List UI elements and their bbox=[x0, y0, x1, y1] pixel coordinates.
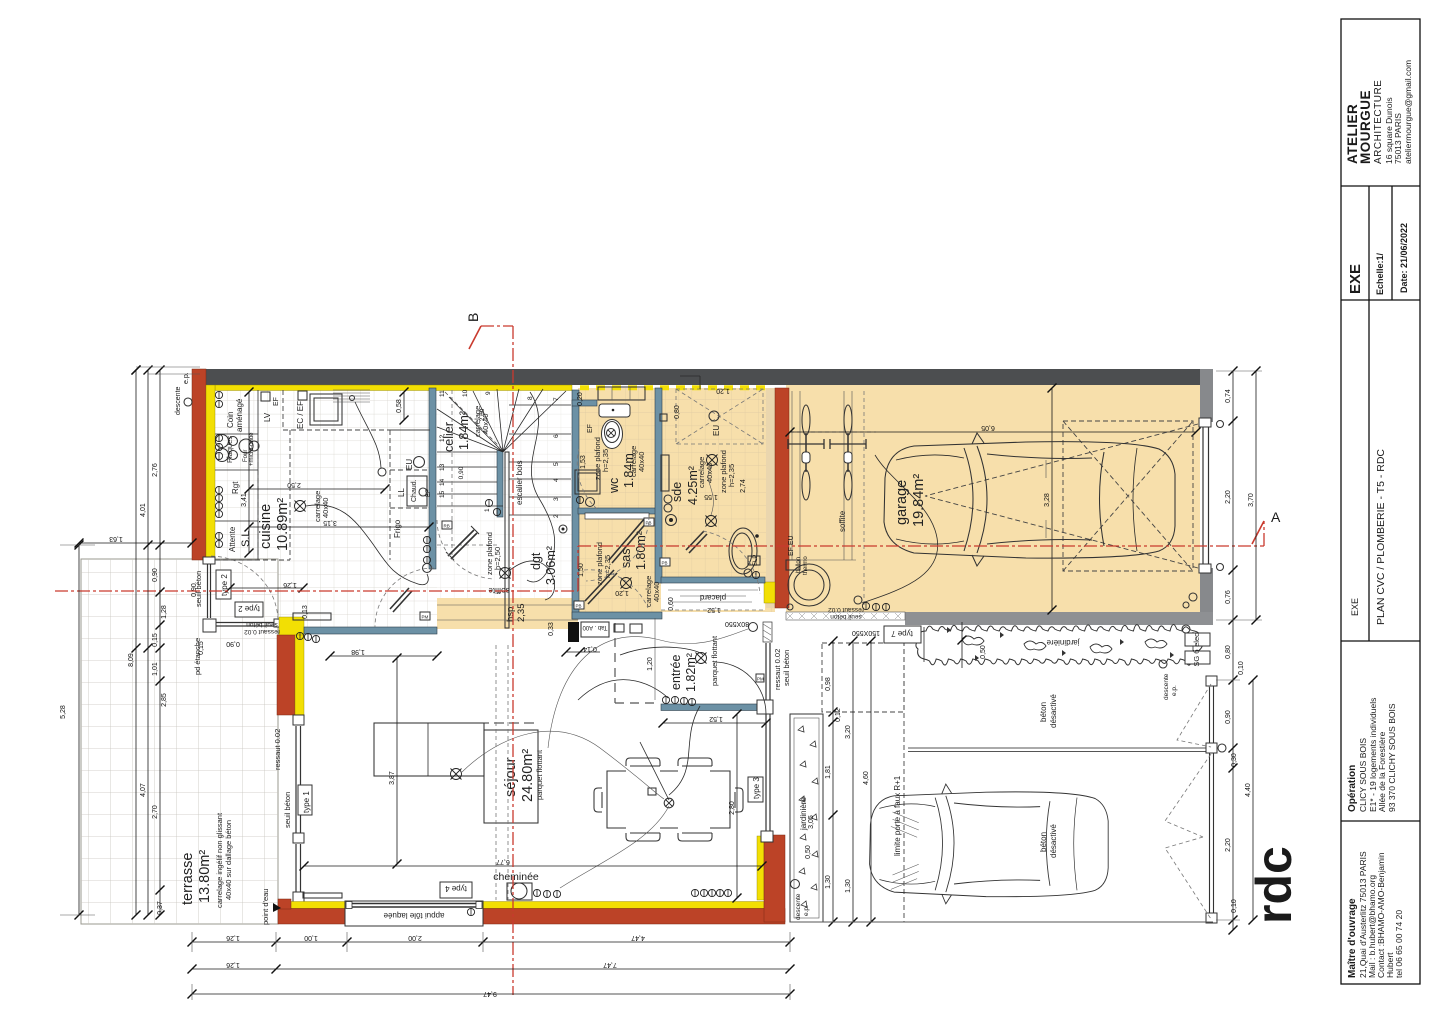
svg-text:descente: descente bbox=[795, 893, 802, 920]
svg-text:3,41: 3,41 bbox=[241, 493, 248, 507]
svg-text:S.L: S.L bbox=[240, 530, 252, 547]
svg-text:SG б: SG б bbox=[1192, 649, 1201, 666]
svg-text:10.89m²: 10.89m² bbox=[275, 498, 291, 551]
svg-text:parquet flottant: parquet flottant bbox=[710, 635, 719, 686]
svg-text:LV: LV bbox=[263, 412, 272, 422]
svg-text:75013 PARIS: 75013 PARIS bbox=[1393, 113, 1403, 164]
svg-text:4,60: 4,60 bbox=[863, 771, 870, 785]
svg-text:seuil béton: seuil béton bbox=[782, 650, 791, 686]
svg-text:désactivé: désactivé bbox=[1049, 694, 1058, 728]
svg-text:0,50: 0,50 bbox=[805, 845, 812, 859]
svg-text:type 4: type 4 bbox=[445, 884, 467, 893]
svg-text:8,09: 8,09 bbox=[128, 653, 135, 667]
svg-text:1.80m²: 1.80m² bbox=[634, 531, 648, 570]
svg-text:type 3: type 3 bbox=[752, 777, 761, 799]
svg-text:0,33: 0,33 bbox=[548, 622, 555, 636]
svg-text:2: 2 bbox=[553, 514, 560, 518]
svg-text:4,40: 4,40 bbox=[1245, 783, 1252, 797]
svg-text:seuil béton: seuil béton bbox=[283, 792, 292, 828]
svg-text:5: 5 bbox=[553, 462, 560, 466]
svg-text:0,15: 0,15 bbox=[152, 633, 159, 647]
svg-text:type 7: type 7 bbox=[891, 629, 913, 638]
svg-text:ressaut 0.02: ressaut 0.02 bbox=[828, 606, 864, 613]
svg-text:Allée de la Forestière: Allée de la Forestière bbox=[1377, 731, 1387, 812]
svg-text:EXE: EXE bbox=[1347, 264, 1364, 294]
svg-text:0,90: 0,90 bbox=[191, 583, 198, 597]
svg-text:Attente: Attente bbox=[228, 526, 237, 552]
svg-text:EF: EF bbox=[426, 489, 432, 497]
svg-text:1,01: 1,01 bbox=[152, 662, 159, 676]
svg-text:2,20: 2,20 bbox=[1225, 838, 1232, 852]
svg-text:13: 13 bbox=[439, 463, 446, 471]
svg-text:7,47: 7,47 bbox=[603, 961, 617, 968]
svg-text:1,81: 1,81 bbox=[825, 765, 832, 779]
svg-text:PM: PM bbox=[422, 615, 429, 620]
svg-text:ARCHITECTURE: ARCHITECTURE bbox=[1373, 80, 1384, 164]
svg-text:0,80: 0,80 bbox=[674, 405, 681, 419]
svg-text:descente: descente bbox=[1163, 673, 1170, 700]
svg-text:7: 7 bbox=[553, 397, 560, 401]
svg-text:type 2: type 2 bbox=[220, 574, 229, 596]
svg-text:3,15: 3,15 bbox=[323, 519, 337, 526]
svg-text:1,20: 1,20 bbox=[615, 589, 629, 596]
svg-text:wc: wc bbox=[607, 478, 621, 494]
svg-text:h=2,35: h=2,35 bbox=[601, 449, 610, 472]
svg-text:désactivé: désactivé bbox=[1049, 824, 1058, 858]
svg-text:1,30: 1,30 bbox=[825, 875, 832, 889]
svg-text:entrée: entrée bbox=[669, 655, 683, 690]
svg-text:0,14: 0,14 bbox=[583, 645, 597, 652]
svg-text:2,35: 2,35 bbox=[516, 604, 527, 623]
svg-text:1,63: 1,63 bbox=[109, 535, 123, 542]
svg-text:aménagé: aménagé bbox=[235, 398, 244, 432]
svg-text:séjour: séjour bbox=[503, 757, 519, 797]
svg-text:3,87: 3,87 bbox=[389, 771, 396, 785]
svg-text:4,01: 4,01 bbox=[140, 503, 147, 517]
svg-text:1,53: 1,53 bbox=[580, 455, 587, 469]
svg-text:sde: sde bbox=[670, 482, 684, 502]
svg-text:PLAN CVC / PLOMBERIE - T5 - R: PLAN CVC / PLOMBERIE - T5 - RDC bbox=[1375, 449, 1387, 625]
svg-text:Coin: Coin bbox=[226, 412, 235, 428]
svg-text:Rgt: Rgt bbox=[231, 481, 240, 494]
svg-text:40x40 sur dallage béton: 40x40 sur dallage béton bbox=[224, 820, 233, 900]
svg-text:Chaud.: Chaud. bbox=[411, 479, 418, 502]
svg-text:placard: placard bbox=[700, 593, 726, 602]
svg-text:0,90: 0,90 bbox=[226, 640, 240, 647]
svg-text:1,30: 1,30 bbox=[845, 879, 852, 893]
svg-text:ressaut 0.02: ressaut 0.02 bbox=[273, 729, 282, 770]
svg-text:B: B bbox=[465, 313, 481, 322]
svg-text:2,74: 2,74 bbox=[740, 479, 747, 493]
svg-text:PM: PM bbox=[757, 677, 764, 682]
svg-text:A: A bbox=[1271, 509, 1281, 525]
svg-text:cheminée: cheminée bbox=[493, 871, 539, 883]
svg-text:Date: 21/06/2022: Date: 21/06/2022 bbox=[1399, 223, 1409, 293]
svg-text:EF: EF bbox=[273, 397, 280, 406]
svg-text:80X550: 80X550 bbox=[725, 620, 749, 627]
svg-text:tel 06 65 00 74 20: tel 06 65 00 74 20 bbox=[1394, 910, 1404, 978]
svg-text:0,37: 0,37 bbox=[157, 901, 164, 915]
svg-text:1,52: 1,52 bbox=[707, 606, 721, 613]
svg-text:Opération: Opération bbox=[1347, 765, 1358, 812]
svg-text:jardinière: jardinière bbox=[1046, 638, 1080, 647]
svg-text:3,70: 3,70 bbox=[1248, 493, 1255, 507]
svg-text:2,70: 2,70 bbox=[152, 805, 159, 819]
svg-text:12: 12 bbox=[439, 434, 446, 442]
svg-text:2,50: 2,50 bbox=[287, 481, 301, 488]
svg-text:0,90: 0,90 bbox=[458, 466, 465, 479]
svg-text:Maître d'ouvrage: Maître d'ouvrage bbox=[1347, 898, 1358, 978]
svg-text:e.p.: e.p. bbox=[1171, 685, 1178, 696]
svg-text:2,60: 2,60 bbox=[479, 408, 486, 421]
svg-text:2,76: 2,76 bbox=[152, 463, 159, 477]
svg-text:3: 3 bbox=[553, 497, 560, 501]
svg-text:h=2,50: h=2,50 bbox=[493, 547, 502, 570]
svg-text:40x40: 40x40 bbox=[321, 498, 330, 518]
svg-text:3,05: 3,05 bbox=[808, 815, 815, 829]
svg-text:type 2: type 2 bbox=[238, 604, 260, 613]
svg-text:1,20: 1,20 bbox=[647, 657, 654, 671]
svg-text:1,26: 1,26 bbox=[226, 934, 240, 941]
svg-text:13.80m²: 13.80m² bbox=[197, 850, 213, 903]
svg-text:1,98: 1,98 bbox=[351, 648, 365, 655]
svg-text:CLICY SOUS BOIS: CLICY SOUS BOIS bbox=[1358, 738, 1368, 812]
svg-text:descente: descente bbox=[175, 386, 182, 415]
svg-text:0,12: 0,12 bbox=[835, 708, 842, 722]
svg-text:LL: LL bbox=[397, 488, 406, 497]
svg-text:4: 4 bbox=[553, 478, 560, 482]
svg-text:PB: PB bbox=[662, 561, 668, 566]
svg-text:3,20: 3,20 bbox=[845, 725, 852, 739]
svg-text:seuil béton: seuil béton bbox=[246, 621, 278, 628]
svg-text:0,76: 0,76 bbox=[1225, 590, 1232, 604]
svg-text:4,47: 4,47 bbox=[631, 934, 645, 941]
svg-text:9: 9 bbox=[485, 391, 492, 395]
svg-text:e.p.: e.p. bbox=[183, 372, 190, 384]
svg-text:jardinière: jardinière bbox=[799, 797, 808, 831]
svg-text:1: 1 bbox=[484, 508, 491, 512]
svg-text:1,00: 1,00 bbox=[304, 934, 318, 941]
svg-text:2,80: 2,80 bbox=[729, 801, 736, 815]
svg-text:rdc: rdc bbox=[1246, 846, 1302, 924]
svg-text:0,50: 0,50 bbox=[980, 645, 987, 659]
svg-text:ELP: ELP bbox=[753, 555, 759, 566]
svg-text:0,60: 0,60 bbox=[668, 597, 675, 611]
svg-text:40x40: 40x40 bbox=[652, 582, 661, 602]
svg-text:Plaques: Plaques bbox=[225, 436, 234, 463]
svg-text:béton: béton bbox=[1039, 702, 1048, 722]
svg-text:MOURGUE: MOURGUE bbox=[1358, 90, 1373, 164]
svg-text:0,90: 0,90 bbox=[1225, 710, 1232, 724]
svg-text:6,05: 6,05 bbox=[981, 424, 995, 431]
svg-text:cuisine: cuisine bbox=[258, 504, 274, 549]
svg-text:0,80: 0,80 bbox=[1225, 645, 1232, 659]
svg-text:40x40: 40x40 bbox=[637, 452, 646, 472]
svg-text:Frigo: Frigo bbox=[393, 519, 402, 538]
svg-text:ressaut 0.02: ressaut 0.02 bbox=[244, 628, 280, 635]
svg-text:EU: EU bbox=[405, 459, 414, 470]
svg-text:seuil béton: seuil béton bbox=[830, 613, 862, 620]
svg-text:1,20: 1,20 bbox=[716, 387, 730, 394]
svg-text:EXE: EXE bbox=[1350, 598, 1360, 616]
svg-text:2,20: 2,20 bbox=[1225, 490, 1232, 504]
svg-text:2,85: 2,85 bbox=[161, 693, 168, 707]
svg-text:pd étanche: pd étanche bbox=[193, 638, 202, 675]
svg-text:0,98: 0,98 bbox=[825, 677, 832, 691]
svg-text:Tab . A00: Tab . A00 bbox=[582, 624, 608, 630]
svg-text:escalier bois: escalier bois bbox=[515, 461, 524, 505]
svg-text:garage: garage bbox=[894, 480, 910, 525]
svg-text:appui tôle laquée: appui tôle laquée bbox=[383, 911, 444, 920]
svg-text:point d'eau: point d'eau bbox=[261, 889, 270, 925]
svg-text:+micro-onde: +micro-onde bbox=[249, 432, 255, 466]
svg-text:1,55: 1,55 bbox=[704, 493, 718, 500]
svg-text:2,00: 2,00 bbox=[408, 934, 422, 941]
svg-text:4,07: 4,07 bbox=[140, 783, 147, 797]
svg-text:EU: EU bbox=[712, 425, 721, 436]
svg-text:1,50: 1,50 bbox=[578, 563, 585, 577]
svg-text:h=2,35: h=2,35 bbox=[727, 464, 736, 487]
svg-text:EC / EF: EC / EF bbox=[296, 401, 305, 429]
svg-text:150X550: 150X550 bbox=[852, 629, 880, 636]
svg-text:10: 10 bbox=[462, 389, 469, 397]
svg-text:0,90: 0,90 bbox=[152, 568, 159, 582]
svg-text:3,28: 3,28 bbox=[1044, 493, 1051, 507]
svg-text:0,10: 0,10 bbox=[1238, 661, 1245, 675]
svg-text:parquet flottant: parquet flottant bbox=[535, 749, 544, 800]
svg-text:11: 11 bbox=[439, 390, 446, 397]
svg-text:terrasse: terrasse bbox=[180, 853, 196, 905]
svg-text:6: 6 bbox=[553, 434, 560, 438]
svg-text:0,58: 0,58 bbox=[396, 399, 403, 413]
svg-text:ballon: ballon bbox=[796, 557, 802, 573]
svg-text:0,10: 0,10 bbox=[1231, 899, 1238, 913]
svg-text:24.80m²: 24.80m² bbox=[520, 749, 536, 802]
svg-text:14: 14 bbox=[439, 478, 446, 486]
svg-text:5,28: 5,28 bbox=[60, 705, 67, 719]
svg-text:93 370 CLICHY SOUS BOIS: 93 370 CLICHY SOUS BOIS bbox=[1387, 703, 1397, 812]
svg-text:0,13: 0,13 bbox=[302, 605, 309, 619]
svg-text:9,47: 9,47 bbox=[483, 990, 497, 997]
svg-text:0,20: 0,20 bbox=[577, 392, 584, 406]
svg-text:1,52: 1,52 bbox=[709, 715, 723, 722]
svg-text:1,26: 1,26 bbox=[226, 961, 240, 968]
svg-text:thermo: thermo bbox=[803, 556, 809, 575]
svg-text:hsp: hsp bbox=[505, 607, 516, 622]
svg-text:carrelage ingélif non glissant: carrelage ingélif non glissant bbox=[215, 812, 224, 908]
svg-text:Echelle:1/: Echelle:1/ bbox=[1375, 252, 1385, 295]
svg-text:0,30: 0,30 bbox=[1231, 753, 1238, 767]
svg-text:RB: RB bbox=[444, 524, 450, 529]
svg-text:e.p.: e.p. bbox=[803, 905, 810, 916]
svg-text:soffite: soffite bbox=[838, 510, 847, 532]
svg-text:PB: PB bbox=[576, 604, 582, 609]
svg-text:19.84m²: 19.84m² bbox=[911, 474, 927, 527]
svg-text:EF: EF bbox=[587, 424, 594, 433]
svg-text:elec: elec bbox=[1192, 633, 1201, 647]
svg-text:ressaut 0.02: ressaut 0.02 bbox=[773, 649, 782, 690]
svg-text:3.06m²: 3.06m² bbox=[544, 546, 558, 585]
svg-text:1,26: 1,26 bbox=[283, 581, 297, 588]
svg-text:type 1: type 1 bbox=[302, 791, 311, 813]
svg-text:0,74: 0,74 bbox=[1225, 389, 1232, 403]
svg-text:1,28: 1,28 bbox=[161, 605, 168, 619]
svg-text:15: 15 bbox=[439, 490, 446, 498]
svg-text:ateliermourgue@gmail.com: ateliermourgue@gmail.com bbox=[1403, 60, 1413, 164]
